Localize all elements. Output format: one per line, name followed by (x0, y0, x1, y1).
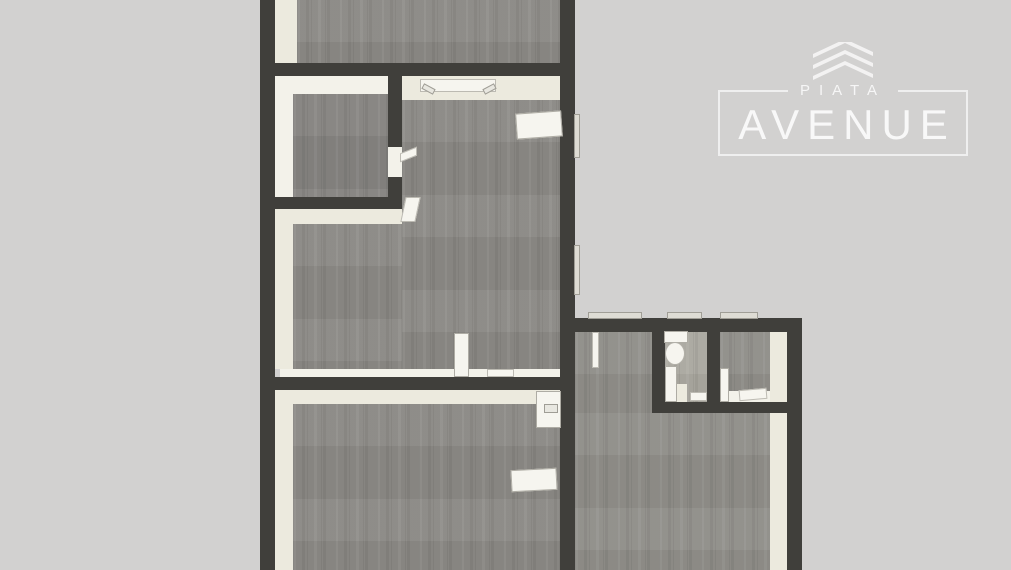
wall-mid-horizontal-left (260, 197, 402, 209)
window-wing-top-1 (588, 312, 642, 319)
bottom-room-top-wall-face (275, 390, 560, 404)
main-room-midwall-face (275, 209, 402, 224)
outer-wall-right-mid (560, 0, 575, 570)
main-room-floor-right (402, 100, 560, 369)
bathroom-left-wall (652, 332, 665, 413)
bottom-room-cabinet-glyph (544, 404, 558, 413)
top-room-left-wall-face (275, 0, 297, 63)
main-room-left-wall-face (275, 224, 293, 369)
window-right-wall-upper (574, 114, 580, 158)
floor-plan-stage: PIATA AVENUE (0, 0, 1011, 570)
right-wing-door-sliver (592, 332, 599, 368)
bottom-room-left-wall-face (275, 404, 293, 570)
window-wing-top-3 (720, 312, 758, 319)
top-room-floor (297, 0, 560, 63)
window-wing-top-2 (667, 312, 702, 319)
right-wing-right-wall (787, 318, 802, 570)
brand-logo-frame: PIATA AVENUE (718, 92, 968, 156)
right-wing-top-wall (560, 318, 802, 332)
bottom-room-table (510, 468, 557, 492)
small-room-right-open-door-leaf (720, 368, 729, 402)
bathroom-open-door-leaf (665, 366, 677, 402)
brand-logo: PIATA AVENUE (718, 42, 968, 156)
main-room-open-door-leaf (454, 333, 469, 377)
toilet-bowl-icon (665, 342, 685, 365)
bathroom-door-threshold (690, 392, 707, 401)
brand-rule-left (718, 90, 788, 92)
brand-line1-row: PIATA (718, 83, 968, 98)
main-room-windowsill (515, 110, 563, 139)
bathroom-right-wall (707, 332, 720, 413)
right-wing-right-wall-face (770, 332, 787, 570)
stacked-chevrons-logo-icon (811, 42, 875, 86)
wall-vertical-small-room (388, 63, 402, 209)
brand-line1: PIATA (788, 83, 898, 98)
brand-line2: AVENUE (724, 104, 962, 146)
main-room-floor-left (293, 224, 402, 369)
right-wing-main-floor (575, 413, 770, 570)
window-right-wall-lower (574, 245, 580, 295)
wall-bottom-horizontal (260, 377, 575, 390)
small-room-left-floor (293, 94, 388, 197)
main-room-door-threshold (487, 369, 514, 377)
small-rooms-bottom-wall (652, 402, 787, 413)
main-room-bottom-wall-topface (280, 369, 560, 377)
outer-wall-left (260, 0, 275, 570)
brand-rule-right (898, 90, 968, 92)
wall-top-horizontal (260, 63, 575, 76)
